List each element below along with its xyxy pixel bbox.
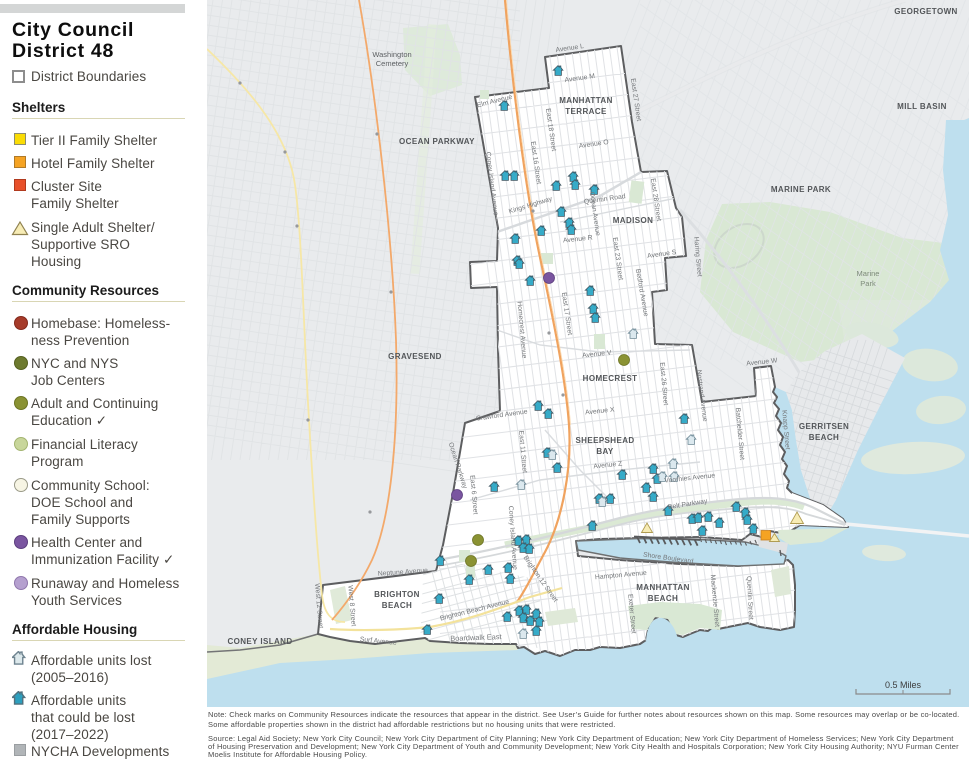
svg-text:0.5 Miles: 0.5 Miles (885, 680, 922, 690)
svg-text:TERRACE: TERRACE (565, 107, 607, 116)
svg-text:GERRITSEN: GERRITSEN (799, 422, 849, 431)
svg-text:HOMECREST: HOMECREST (583, 374, 638, 383)
svg-text:Marine: Marine (857, 269, 880, 278)
svg-text:BEACH: BEACH (809, 433, 839, 442)
svg-text:Park: Park (860, 279, 876, 288)
svg-text:BEACH: BEACH (382, 601, 412, 610)
svg-text:MADISON: MADISON (613, 216, 654, 225)
svg-text:BAY: BAY (596, 447, 614, 456)
svg-text:Boardwalk East: Boardwalk East (450, 632, 502, 643)
svg-text:GEORGETOWN: GEORGETOWN (894, 7, 957, 16)
svg-text:SHEEPSHEAD: SHEEPSHEAD (575, 436, 634, 445)
svg-text:OCEAN PARKWAY: OCEAN PARKWAY (399, 137, 475, 146)
svg-text:MANHATTAN: MANHATTAN (636, 583, 690, 592)
svg-text:BEACH: BEACH (648, 594, 678, 603)
svg-text:MILL BASIN: MILL BASIN (897, 102, 947, 111)
svg-text:MANHATTAN: MANHATTAN (559, 96, 613, 105)
svg-text:BRIGHTON: BRIGHTON (374, 590, 420, 599)
svg-text:Washington: Washington (372, 50, 411, 59)
svg-text:MARINE PARK: MARINE PARK (771, 185, 831, 194)
svg-text:GRAVESEND: GRAVESEND (388, 352, 442, 361)
svg-text:CONEY ISLAND: CONEY ISLAND (227, 637, 292, 646)
svg-text:Cemetery: Cemetery (376, 59, 409, 68)
